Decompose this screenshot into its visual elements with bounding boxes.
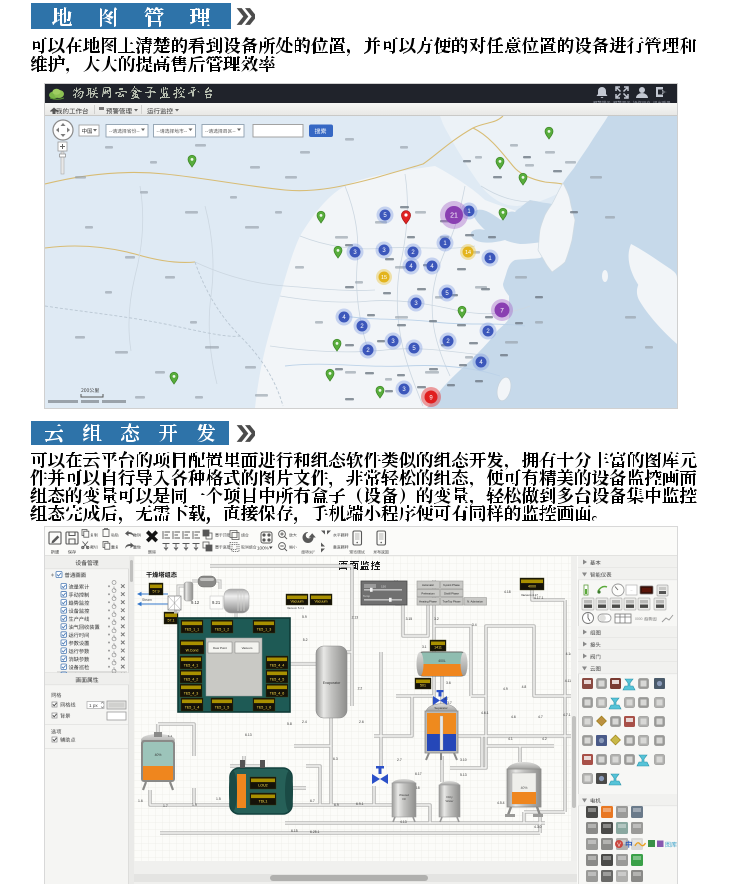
svg-text:Oil: Oil bbox=[402, 797, 406, 801]
svg-text:3.10: 3.10 bbox=[460, 758, 467, 762]
svg-text:4.7: 4.7 bbox=[538, 715, 543, 719]
svg-text:Vacuum: Vacuum bbox=[291, 600, 304, 604]
svg-text:4.6: 4.6 bbox=[511, 715, 516, 719]
svg-text:4.13: 4.13 bbox=[400, 820, 407, 824]
svg-text:W.Cond: W.Cond bbox=[186, 649, 199, 653]
svg-text:TE5_1_4: TE5_1_4 bbox=[185, 706, 200, 710]
svg-text:15: 15 bbox=[381, 275, 387, 281]
svg-text:4.9: 4.9 bbox=[503, 687, 508, 691]
svg-text:6.25.1: 6.25.1 bbox=[310, 830, 320, 834]
svg-text:40%: 40% bbox=[155, 753, 162, 757]
svg-text:Dew Point: Dew Point bbox=[213, 646, 227, 650]
svg-text:57.1: 57.1 bbox=[168, 619, 175, 623]
svg-text:TrueTop Phase: TrueTop Phase bbox=[442, 600, 461, 604]
svg-text:N. Admission: N. Admission bbox=[467, 600, 483, 604]
svg-text:4.7.1: 4.7.1 bbox=[563, 713, 571, 717]
svg-text:TDL1: TDL1 bbox=[259, 800, 268, 804]
svg-text:2.13: 2.13 bbox=[352, 616, 359, 620]
svg-text:1.6: 1.6 bbox=[138, 799, 143, 803]
svg-text:Water: Water bbox=[446, 799, 454, 803]
svg-text:TE5_4_4: TE5_4_4 bbox=[270, 664, 285, 668]
svg-text:TE5_4_2: TE5_4_2 bbox=[184, 678, 199, 682]
svg-text:Distill Phase: Distill Phase bbox=[444, 591, 459, 595]
svg-text:3.7: 3.7 bbox=[444, 697, 449, 701]
svg-text:V: V bbox=[617, 842, 621, 848]
svg-text:4.1: 4.1 bbox=[508, 737, 513, 741]
svg-text:TE5_1_6: TE5_1_6 bbox=[257, 706, 272, 710]
svg-text:4.18: 4.18 bbox=[504, 590, 511, 594]
svg-text:2.7: 2.7 bbox=[397, 758, 402, 762]
svg-text:3.2: 3.2 bbox=[434, 617, 439, 621]
svg-text:3.15: 3.15 bbox=[406, 617, 413, 621]
svg-text:2.6: 2.6 bbox=[359, 720, 364, 724]
svg-text:6.13: 6.13 bbox=[245, 733, 252, 737]
svg-text:150: 150 bbox=[381, 585, 386, 589]
svg-text:9.12: 9.12 bbox=[191, 600, 200, 605]
svg-text:Temp: Temp bbox=[363, 594, 370, 598]
svg-text:1.7: 1.7 bbox=[163, 804, 168, 808]
svg-text:Heating Phase: Heating Phase bbox=[419, 600, 437, 604]
svg-text:TE5_4_6: TE5_4_6 bbox=[270, 692, 285, 696]
svg-text:100%: 100% bbox=[257, 546, 269, 551]
svg-text:Preheatum: Preheatum bbox=[421, 591, 435, 595]
svg-text:TE5_4_3: TE5_4_3 bbox=[184, 692, 199, 696]
svg-text:9.21: 9.21 bbox=[212, 600, 221, 605]
svg-text:6.9: 6.9 bbox=[334, 803, 339, 807]
svg-text:6.3: 6.3 bbox=[333, 757, 338, 761]
svg-text:1411: 1411 bbox=[434, 646, 442, 650]
svg-text:--: -- bbox=[631, 589, 633, 593]
svg-text:TE5_1_3: TE5_1_3 bbox=[257, 628, 272, 632]
svg-text:4.8: 4.8 bbox=[522, 685, 527, 689]
svg-text:5.13: 5.13 bbox=[460, 773, 467, 777]
svg-text:0000: 0000 bbox=[635, 617, 643, 621]
svg-text:Vacuum: Vacuum bbox=[242, 646, 253, 650]
svg-text:4000: 4000 bbox=[528, 585, 536, 589]
svg-text:TE5_1_1: TE5_1_1 bbox=[185, 628, 200, 632]
svg-text:5.2: 5.2 bbox=[303, 638, 308, 642]
svg-text:TE5_4_1: TE5_4_1 bbox=[184, 664, 199, 668]
svg-text:5.9: 5.9 bbox=[302, 615, 307, 619]
svg-text:1.5: 1.5 bbox=[216, 797, 221, 801]
svg-text:2.4: 2.4 bbox=[302, 720, 307, 724]
svg-text:Automatic: Automatic bbox=[422, 583, 435, 587]
svg-text:1.1: 1.1 bbox=[168, 734, 173, 738]
svg-text:400L: 400L bbox=[438, 659, 446, 663]
svg-text:2.2: 2.2 bbox=[358, 687, 363, 691]
svg-text:7: 7 bbox=[500, 308, 504, 315]
svg-text:4.3.0: 4.3.0 bbox=[534, 825, 542, 829]
svg-text:3.1: 3.1 bbox=[422, 645, 427, 649]
svg-text:14: 14 bbox=[465, 250, 471, 256]
svg-text:3.6: 3.6 bbox=[446, 681, 451, 685]
svg-text:TE5_1_5: TE5_1_5 bbox=[215, 706, 230, 710]
svg-text:1 px: 1 px bbox=[89, 703, 98, 708]
svg-text:6.9.1: 6.9.1 bbox=[356, 802, 364, 806]
svg-text:TE5_1_2: TE5_1_2 bbox=[215, 628, 230, 632]
svg-text:Vacuum: Vacuum bbox=[315, 600, 328, 604]
svg-text:6.7: 6.7 bbox=[310, 799, 315, 803]
svg-text:1.9: 1.9 bbox=[192, 803, 197, 807]
svg-text:TE5_4_5: TE5_4_5 bbox=[270, 678, 285, 682]
svg-text:LOU2: LOU2 bbox=[258, 784, 267, 788]
svg-text:40%: 40% bbox=[521, 786, 528, 790]
svg-text:57.9: 57.9 bbox=[153, 590, 160, 594]
svg-text:Evaporator: Evaporator bbox=[323, 681, 341, 685]
svg-text:501: 501 bbox=[420, 684, 426, 688]
svg-text:21: 21 bbox=[450, 213, 458, 220]
svg-text:Separator: Separator bbox=[434, 706, 447, 710]
svg-text:3.4: 3.4 bbox=[472, 623, 477, 627]
svg-text:4.2: 4.2 bbox=[542, 737, 547, 741]
svg-text:Vacuum 5.3.1: Vacuum 5.3.1 bbox=[287, 606, 304, 610]
svg-text:Steam: Steam bbox=[142, 598, 152, 602]
svg-text:4.6.1: 4.6.1 bbox=[481, 711, 489, 715]
svg-text:Vacuum 4.17: Vacuum 4.17 bbox=[521, 593, 538, 597]
svg-text:4.5.4: 4.5.4 bbox=[497, 801, 505, 805]
svg-text:6.15: 6.15 bbox=[291, 829, 298, 833]
svg-text:5.8: 5.8 bbox=[287, 722, 292, 726]
svg-text:6-point Phase: 6-point Phase bbox=[443, 583, 460, 587]
svg-text:6.17: 6.17 bbox=[415, 772, 422, 776]
